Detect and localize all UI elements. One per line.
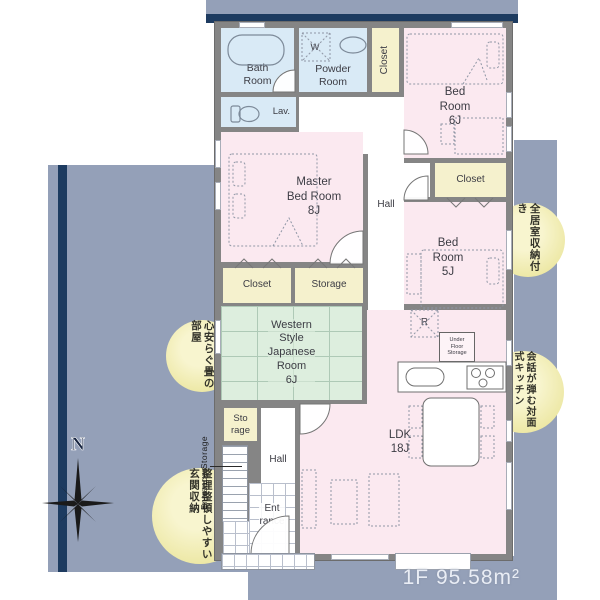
room-entrance: Ent rance [249,483,295,554]
room-master-bedroom: Master Bed Room 8J [221,132,363,262]
window-icon [506,340,512,366]
room-lavatory-label: Lav. [273,106,290,118]
badge-tatami-room-text: 心安らぐ畳の部屋 [189,320,214,392]
room-lavatory: Lav. [221,97,296,127]
window-icon [506,420,512,442]
entrance-storage-note: Entrance Storage [199,424,209,510]
hall-lower-label: Hall [269,454,286,467]
room-storage-master: Storage [295,268,363,303]
room-japanese-room-label: Western Style Japanese Room 6J [268,319,316,388]
room-master-bedroom-label: Master Bed Room 8J [287,175,341,218]
room-powder-label: Powder Room [315,63,351,89]
room-closet-top: Closet [372,28,399,92]
refrigerator-label: R [421,317,428,330]
room-bedroom-6j-label: Bed Room 6J [440,85,471,128]
compass-star-icon [42,458,114,542]
room-bedroom-6j: Bed Room 6J [404,28,506,158]
room-storage-master-label: Storage [311,279,346,292]
bg-slate-top [206,0,518,15]
window-icon [506,126,512,152]
room-closet-5j-label: Closet [456,174,484,187]
room-ldk-label: LDK 18J [375,428,425,457]
room-bath-label: Bath Room [243,62,271,88]
window-icon [506,92,512,118]
entrance-tile-area [223,521,249,554]
room-closet-master: Closet [223,268,291,303]
window-icon [215,182,221,210]
floor-plan: Bath Room Powder Room Closet Bed Room 6J… [215,22,512,560]
bedroom-5j-entry [404,163,430,197]
compass: N [38,432,118,547]
room-bedroom-5j-label: Bed Room 5J [433,236,464,279]
washing-machine-label: W [311,42,320,54]
hall-lower: Hall [261,408,295,483]
window-icon [239,22,265,28]
room-storage-small-label: Sto rage [231,413,250,437]
room-ldk: LDK 18J [300,404,506,554]
room-bath: Bath Room [221,28,294,92]
washing-machine-icon: W [301,34,329,62]
under-floor-storage-label: Under Floor Storage [447,337,466,357]
badge-counter-kitchen-text: 会話が弾む対面式キッチン [511,351,535,433]
floor-area-label: 1F 95.58m² [368,566,520,590]
floor-plan-page: 全居室収納付き 会話が弾む対面式キッチン 心安らぐ畳の部屋 整理整頓しやすい玄関… [0,0,600,600]
window-icon [215,320,221,354]
room-closet-top-label: Closet [379,46,392,74]
room-bedroom-5j: Bed Room 5J [404,202,506,304]
window-icon [451,22,503,28]
room-japanese-room: Western Style Japanese Room 6J [221,306,362,400]
hall-upper-label: Hall [377,199,394,212]
window-icon [506,462,512,510]
window-icon [331,554,389,560]
badge-all-rooms-storage-text: 全居室収納付き [515,203,540,277]
room-closet-5j: Closet [435,163,506,197]
room-closet-master-label: Closet [243,279,271,292]
compass-rose-icon: N [38,432,118,547]
entrance-porch [222,554,314,569]
room-storage-small: Sto rage [224,408,257,441]
compass-north-label: N [71,434,85,455]
window-icon [215,140,221,168]
refrigerator-icon: R [411,310,438,337]
hall-upper: Hall [368,97,404,310]
window-icon [506,230,512,270]
entrance-storage-cabinet [223,446,247,521]
room-entrance-label: Ent rance [259,503,284,528]
under-floor-storage-box: Under Floor Storage [439,332,475,362]
entrance-storage-pointer-line [210,466,242,467]
